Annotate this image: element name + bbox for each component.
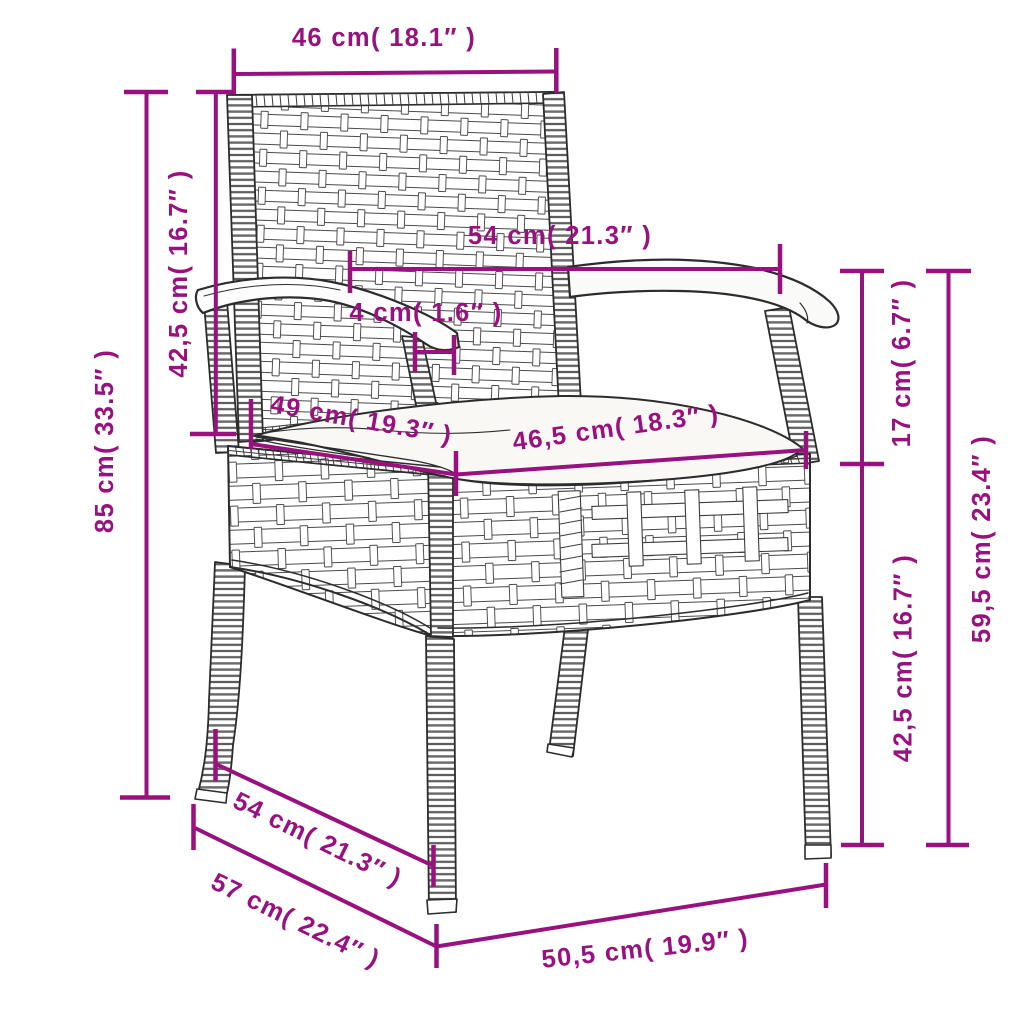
svg-text:42,5 cm( 16.7″ ): 42,5 cm( 16.7″ ) <box>890 554 918 762</box>
svg-text:54 cm( 21.3″ ): 54 cm( 21.3″ ) <box>468 222 652 250</box>
svg-text:46 cm( 18.1″ ): 46 cm( 18.1″ ) <box>292 24 476 52</box>
svg-text:42,5 cm( 16.7″ ): 42,5 cm( 16.7″ ) <box>165 169 193 377</box>
svg-text:4 cm( 1.6″ ): 4 cm( 1.6″ ) <box>349 299 502 327</box>
svg-text:59,5 cm( 23.4″ ): 59,5 cm( 23.4″ ) <box>968 435 996 643</box>
svg-text:85 cm( 33.5″ ): 85 cm( 33.5″ ) <box>91 349 119 533</box>
svg-text:17 cm( 6.7″ ): 17 cm( 6.7″ ) <box>888 279 916 448</box>
